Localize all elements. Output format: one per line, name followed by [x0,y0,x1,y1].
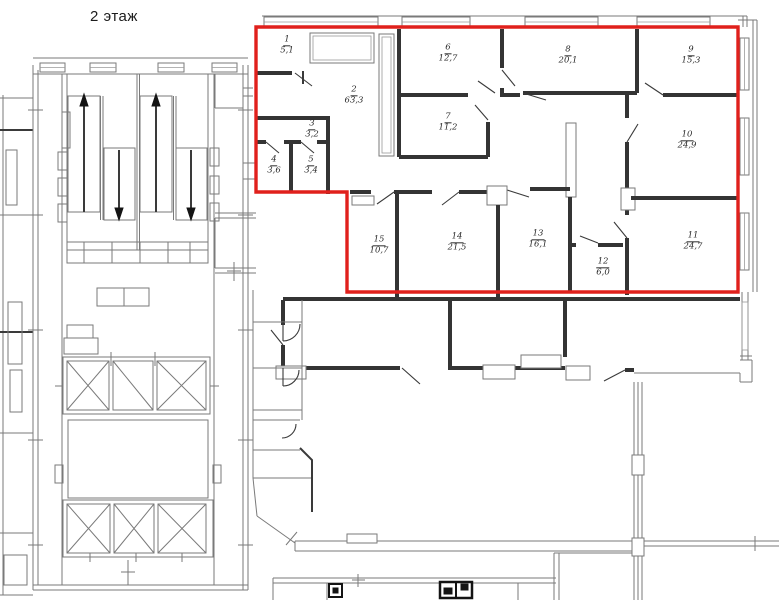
room-label-3: 33,2 [305,119,319,140]
adjacent-building-strip [0,95,33,595]
room-area: 12,7 [439,54,458,64]
room-area: 24,9 [678,141,697,151]
room-area: 3,6 [267,166,281,176]
machine-room [55,420,221,498]
connecting-bridge [215,163,256,281]
tower-top-windows [40,63,237,72]
room-area: 20,1 [559,56,578,66]
lower-rooms [271,292,752,384]
room-area: 10,7 [370,246,389,256]
red-zone-walls [256,29,740,299]
room-label-8: 820,1 [559,45,578,66]
room-label-2: 263,3 [345,85,364,106]
room-label-4: 43,6 [267,155,281,176]
bottom-block [273,574,556,600]
room-area: 24,7 [684,242,703,252]
room-area: 11,2 [439,123,458,133]
elevator-bank-2 [63,500,213,562]
sink-icon [329,584,342,597]
room-area: 6,0 [596,268,610,278]
room-label-1: 15,1 [280,35,294,56]
bottom-right-window-wall [632,382,644,600]
stair-side-boxes [58,112,219,222]
room-area: 21,5 [448,243,467,253]
duct-boxes [97,288,149,306]
floor-plan: 2 этаж 15,1 263,3 33,2 43,6 53,4 612,7 7… [0,0,779,600]
right-windows [738,20,757,292]
room-area: 63,3 [345,96,364,106]
stair-tower [28,58,256,590]
room-label-6: 612,7 [439,43,458,64]
room-label-13: 1316,1 [529,229,548,250]
staircase-right [140,94,207,220]
room-label-10: 1024,9 [678,130,697,151]
room-label-7: 711,2 [439,112,458,133]
room-label-14: 1421,5 [448,232,467,253]
room-label-11: 1124,7 [684,231,703,252]
staircase-left [68,94,135,220]
room-area: 15,3 [682,56,701,66]
room-area: 3,4 [304,166,318,176]
room-area: 16,1 [529,240,548,250]
room-area: 3,2 [305,130,319,140]
room-area: 5,1 [280,46,294,56]
room-label-12: 126,0 [596,257,610,278]
floor-plan-drawing [0,0,779,600]
stove-icon [440,582,472,598]
room-label-15: 1510,7 [370,235,389,256]
room-label-9: 915,3 [682,45,701,66]
elevator-bank-1 [55,352,219,414]
room-label-5: 53,4 [304,155,318,176]
shelf-2 [64,338,98,354]
floor-title: 2 этаж [90,8,138,25]
left-small-rooms [253,290,312,516]
shelf-1 [67,325,93,338]
